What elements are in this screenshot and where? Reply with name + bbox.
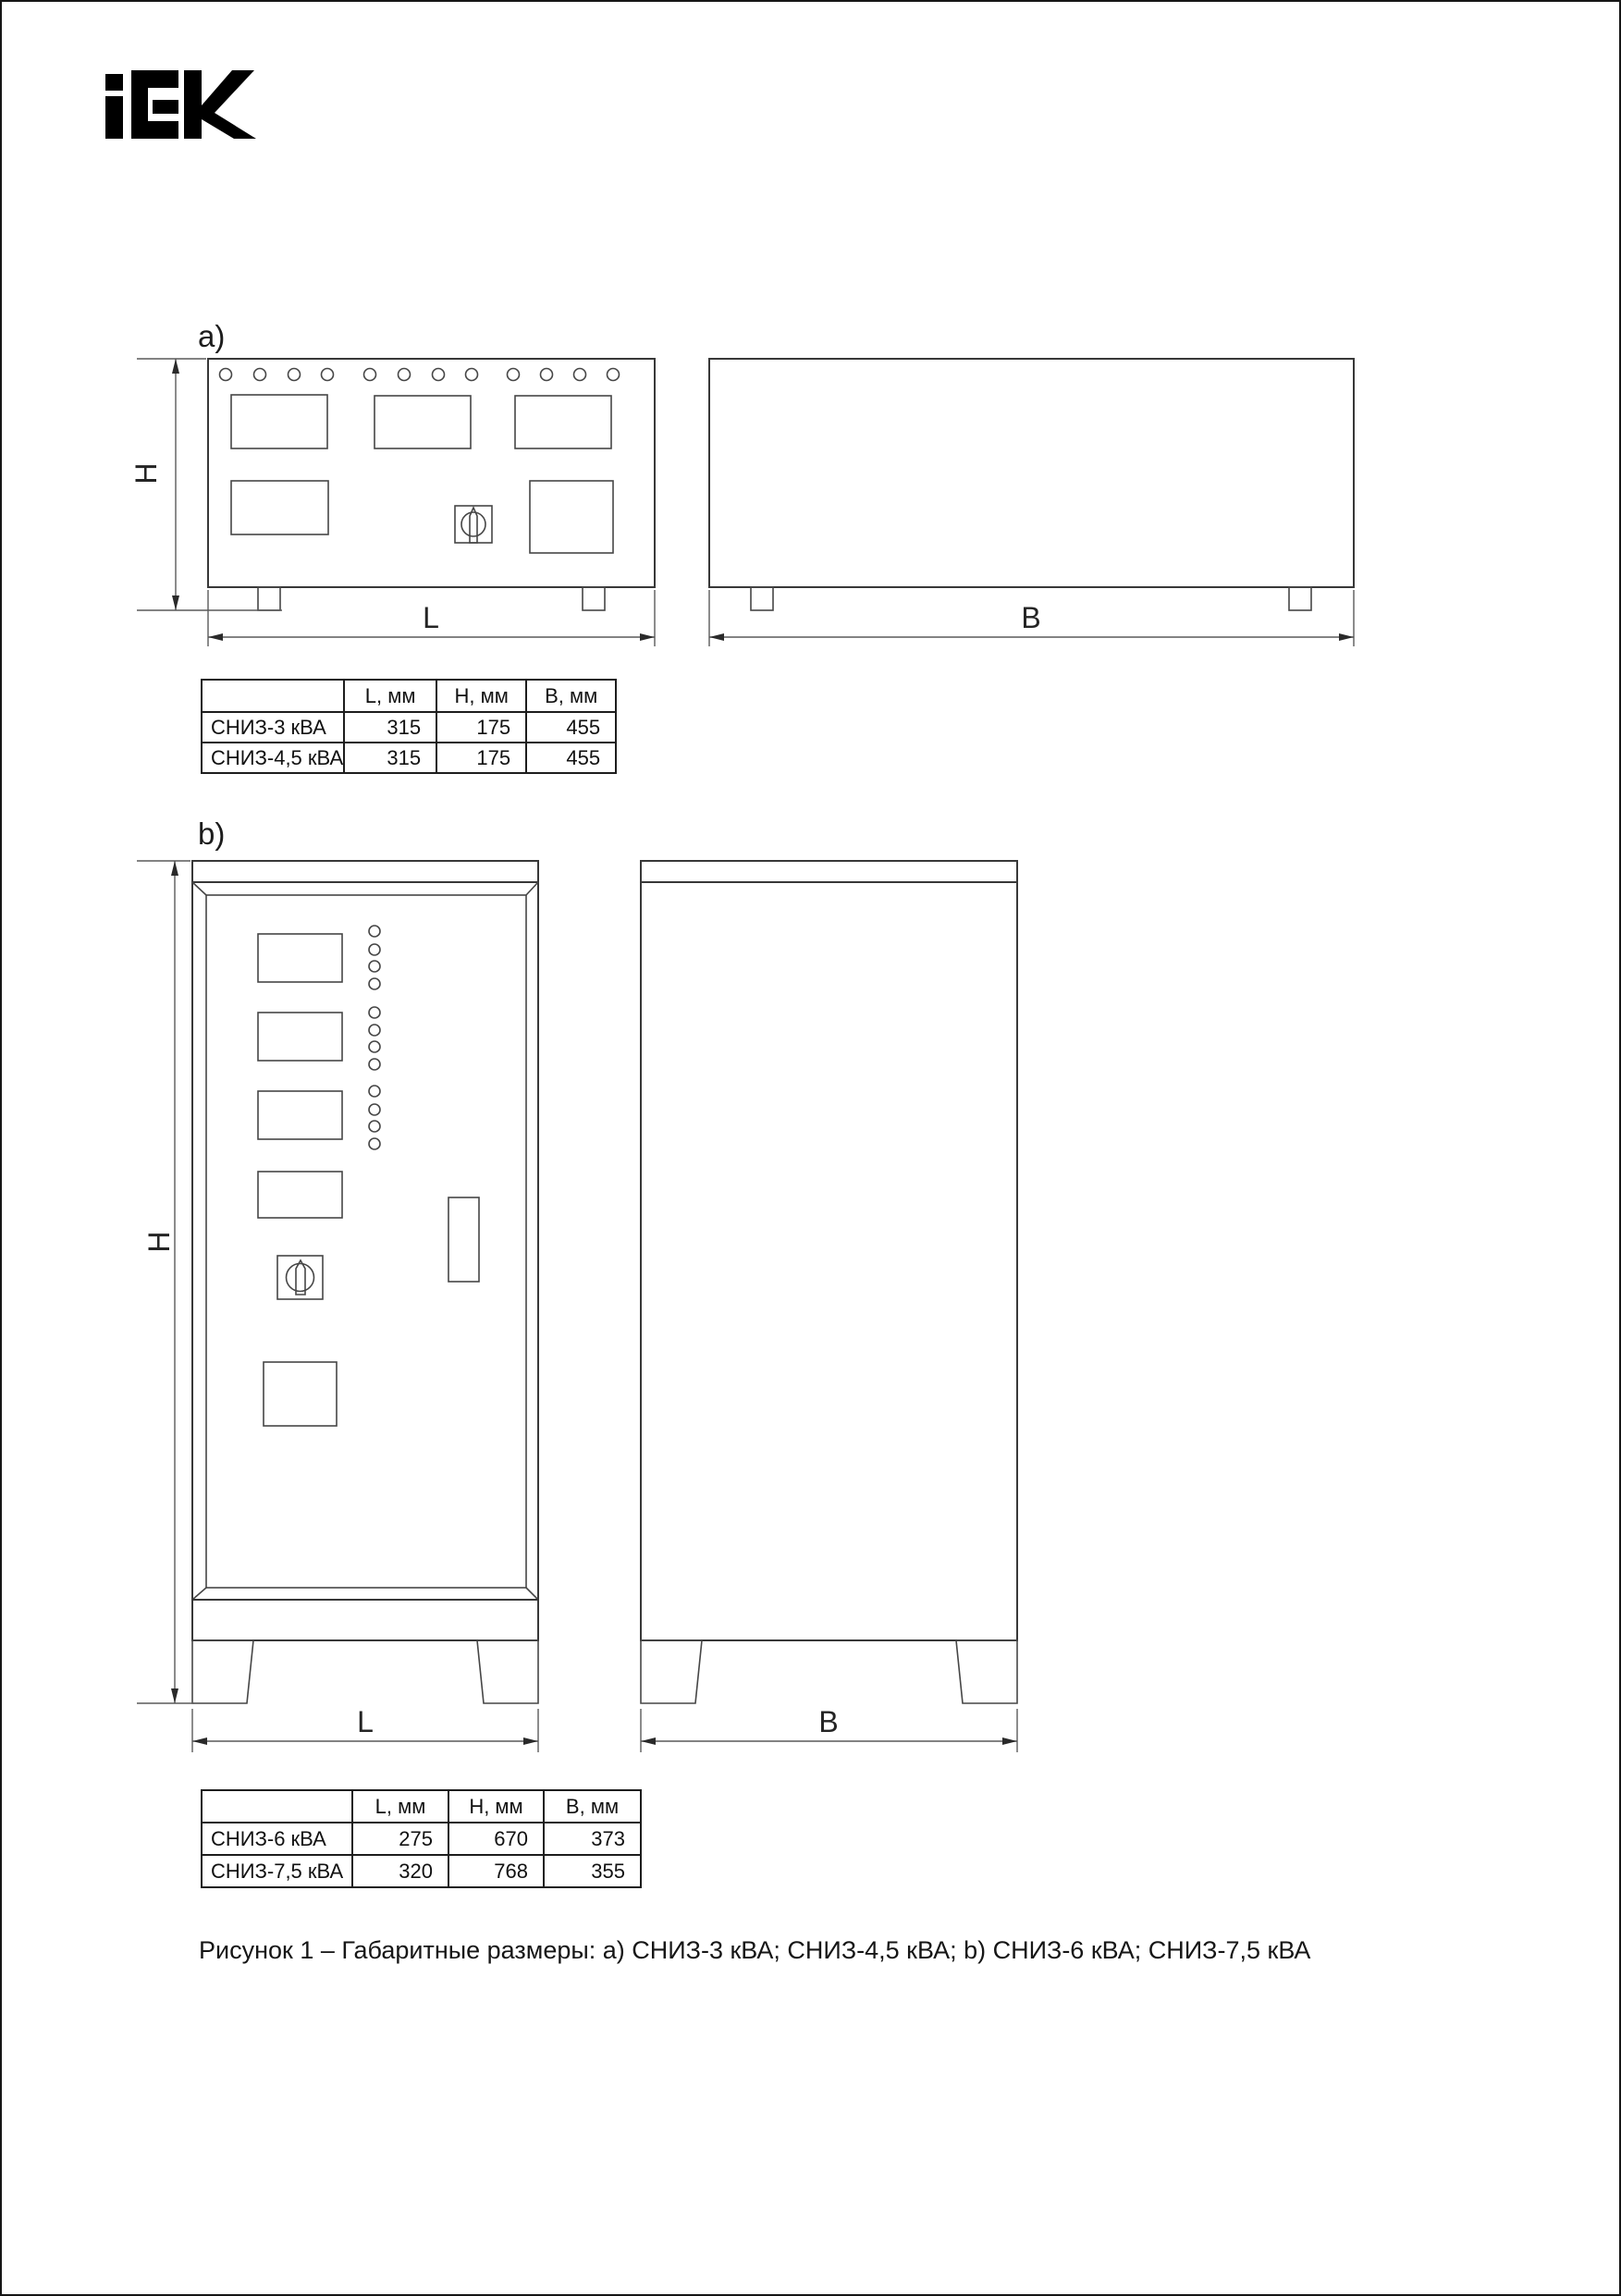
figure-b-height-dim-label: H [141,1223,178,1260]
header-l: L, мм [344,680,436,712]
b-cell: 455 [526,712,616,743]
figure-b-side-view [641,861,1017,1703]
figure-b-front-view [192,861,538,1703]
rotary-switch-icon [455,506,492,543]
figure-b-depth-dim-label: B [736,1705,921,1739]
b-cell: 373 [544,1823,641,1855]
figure-a-length-dim-label: L [338,601,523,635]
figure-a-side-view [709,359,1354,610]
door-handle-slot [448,1197,479,1282]
header-l: L, мм [352,1790,448,1823]
table-row: СНИЗ-4,5 кВА 315 175 455 [202,743,616,773]
l-cell: 315 [344,712,436,743]
h-cell: 768 [448,1855,544,1887]
figure-caption: Рисунок 1 – Габаритные размеры: а) СНИЗ-… [199,1936,1310,1965]
display-windows [231,395,613,553]
header-h: H, мм [436,680,526,712]
figure-a-height-dim-label: H [128,455,165,492]
rotary-switch-icon [277,1256,323,1299]
table-row: СНИЗ-6 кВА 275 670 373 [202,1823,641,1855]
figure-b-dimensions [137,861,1017,1752]
document-page: a) H L B b) H L B L, мм H, мм B, мм СНИЗ… [0,0,1621,2296]
figure-b-label: b) [198,816,225,852]
l-cell: 315 [344,743,436,773]
b-cell: 355 [544,1855,641,1887]
model-cell: СНИЗ-7,5 кВА [202,1855,352,1887]
model-cell: СНИЗ-3 кВА [202,712,344,743]
header-model [202,1790,352,1823]
figure-a-label: a) [198,319,225,354]
l-cell: 320 [352,1855,448,1887]
header-b: B, мм [526,680,616,712]
l-cell: 275 [352,1823,448,1855]
ventilation-holes-row [220,369,620,381]
display-windows [258,934,342,1426]
dimensions-table-a: L, мм H, мм B, мм СНИЗ-3 кВА 315 175 455… [201,679,617,774]
figure-b-length-dim-label: L [273,1705,458,1739]
ventilation-holes-column [369,926,380,1149]
model-cell: СНИЗ-4,5 кВА [202,743,344,773]
table-row: СНИЗ-7,5 кВА 320 768 355 [202,1855,641,1887]
model-cell: СНИЗ-6 кВА [202,1823,352,1855]
h-cell: 175 [436,743,526,773]
iek-logo [105,70,256,139]
figure-a-dimensions [137,359,1354,646]
figure-a-depth-dim-label: B [939,601,1124,635]
table-row: СНИЗ-3 кВА 315 175 455 [202,712,616,743]
header-h: H, мм [448,1790,544,1823]
dimensions-table-b: L, мм H, мм B, мм СНИЗ-6 кВА 275 670 373… [201,1789,642,1888]
feet [192,1640,538,1703]
header-model [202,680,344,712]
h-cell: 670 [448,1823,544,1855]
table-header-row: L, мм H, мм B, мм [202,680,616,712]
table-header-row: L, мм H, мм B, мм [202,1790,641,1823]
figure-a-front-view [208,359,655,610]
b-cell: 455 [526,743,616,773]
h-cell: 175 [436,712,526,743]
header-b: B, мм [544,1790,641,1823]
